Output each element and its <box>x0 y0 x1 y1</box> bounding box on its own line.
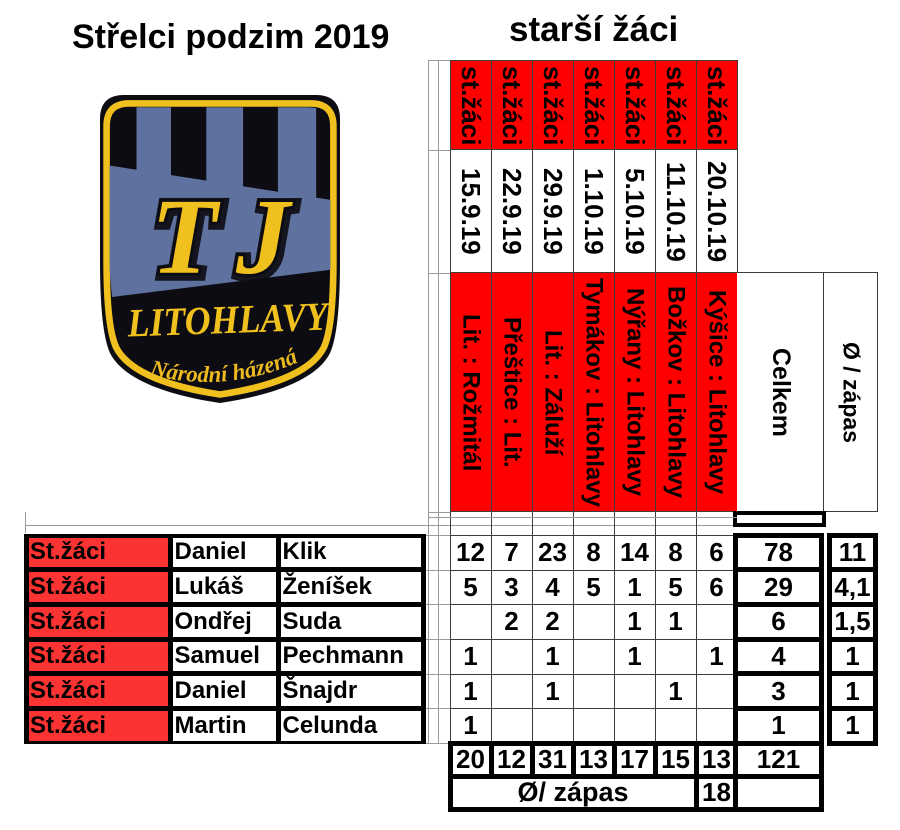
svg-text:LITOHLAVY: LITOHLAVY <box>126 293 332 345</box>
svg-text:TJ: TJ <box>151 178 309 297</box>
